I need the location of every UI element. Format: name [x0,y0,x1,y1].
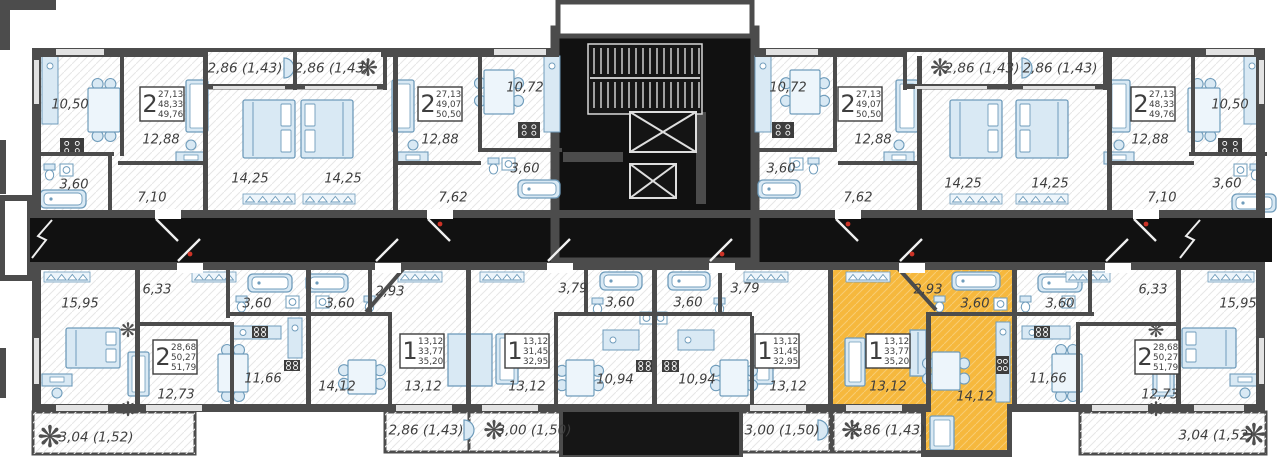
room-area-label: 12,88 [1131,133,1168,148]
toilet-icon [592,298,603,314]
room-area-label: 3,60 [1213,177,1242,192]
room-area-label: 11,66 [1029,372,1066,387]
wall-segment [0,348,6,398]
wall-segment [118,161,206,165]
bed-icon [1182,328,1236,368]
apartment-rooms-count: 2 [1137,343,1152,371]
balcony-area-label: 2,86 (1,43) [945,61,1020,77]
window [213,86,285,89]
stove-icon [252,326,268,338]
wall-segment [395,161,481,165]
bathtub-icon [40,190,86,208]
room-area-label: 14,25 [944,177,981,192]
wall-segment [930,312,1012,316]
balcony-area-label: 3,00 (1,50) [497,423,572,439]
wardrobe-hangers-icon [243,194,295,204]
wall-segment [652,262,657,412]
wall-segment [554,316,558,412]
apartment-rooms-count: 2 [142,90,157,118]
apartment-rooms-count: 1 [507,337,522,365]
room-area-label: 14,25 [324,172,361,187]
room-area-label: 12,73 [1141,388,1178,403]
entry-dot [1144,222,1149,227]
balcony-area-label: 3,04 (1,52) [59,430,134,446]
window [1194,405,1244,411]
wall-segment [1256,262,1265,412]
floor-plan-svg: ❋❋❋❋❋❋❋❋❋❋ 10,5012,8814,253,607,1014,251… [0,0,1280,457]
window [750,405,806,411]
apartment-rooms-count: 2 [1133,90,1148,118]
room-area-label: 3,60 [961,297,990,312]
wall-segment [32,152,114,156]
room-area-label: 7,62 [844,191,873,206]
balcony-area-label: 3,04 (1,52) [1179,428,1254,444]
wall-segment [718,266,722,316]
apartment-area-value: 13,12 [773,337,798,347]
apartment-area-value: 51,79 [171,363,196,373]
kitchen-counter-icon [603,330,639,350]
apartment-area-value: 27,13 [1149,90,1174,100]
washer-icon [286,296,299,308]
wall-segment [230,322,234,412]
wall-segment [0,140,6,194]
apartment-area-value: 33,77 [884,347,909,357]
apartment-rooms-count: 1 [757,337,772,365]
wall-segment [828,262,833,412]
bathtub-icon [306,274,348,292]
wall-segment [554,312,656,316]
apartment-area-value: 28,68 [1153,343,1178,353]
wall-segment [139,322,233,326]
apartment-area-value: 27,13 [436,90,461,100]
apartment-area-value: 50,50 [856,110,882,120]
apartment-area-value: 27,13 [158,90,183,100]
apartment-rooms-count: 2 [420,90,435,118]
apartment-area-value: 33,77 [418,347,443,357]
apartment-area-value: 50,27 [171,353,196,363]
apartment-area-value: 49,07 [436,100,461,110]
door-opening [1133,209,1159,219]
wall-segment [1191,56,1195,156]
wardrobe-hangers-icon [950,194,1002,204]
room-area-label: 7,62 [439,191,468,206]
window [56,405,108,411]
wall-segment [108,152,112,212]
apartment-area-value: 48,33 [158,100,183,110]
wall-segment [32,210,1265,218]
entry-dot [910,252,915,257]
kitchen-counter-icon [678,330,714,350]
stove-icon [636,360,653,372]
apartment-badge: 228,6850,2751,79 [153,340,197,374]
stove-icon [518,122,540,138]
wall-segment [1014,312,1094,316]
room-area-label: 7,10 [138,191,167,206]
apartment-area-value: 50,27 [1153,353,1178,363]
window [34,60,39,104]
wall-segment [650,312,752,316]
apartment-area-value: 50,50 [436,110,462,120]
apartment-badge: 227,1348,3349,76 [1131,87,1175,121]
room-area-label: 13,12 [404,380,441,395]
wall-segment [306,262,311,412]
window [305,86,377,89]
wall-segment [696,112,706,204]
wall-segment [1012,262,1017,412]
apartment-badge: 227,1349,0750,50 [418,87,462,121]
room-area-label: 7,10 [1148,191,1177,206]
toilet-icon [44,164,55,180]
wall-segment [226,266,230,318]
room-area-label: 3,60 [674,296,703,311]
wall-segment [563,152,623,162]
wall-segment [1107,56,1112,212]
balcony-area-label: 3,00 (1,50) [745,423,820,439]
door-opening [375,263,401,273]
bathtub-icon [758,180,800,198]
room-area-label: 14,12 [956,390,993,405]
apartment-badge: 113,1231,4532,95 [505,334,549,368]
apartment-area-value: 31,45 [523,347,548,357]
stove-icon [996,356,1009,374]
wall-segment [838,161,922,165]
wardrobe-hangers-icon [303,194,355,204]
wall-segment [0,0,10,50]
wall-segment [1103,48,1107,90]
bathtub-icon [668,272,710,290]
room-area-label: 10,72 [769,81,806,96]
door-opening [1105,263,1131,273]
apartment-area-value: 49,07 [856,100,881,110]
window [1023,86,1095,89]
door-opening [899,263,925,273]
wall-segment [905,48,1107,52]
room-area-label: 12,88 [421,133,458,148]
apartment-area-value: 49,76 [158,110,184,120]
washer-icon [60,164,73,176]
window [1259,338,1264,384]
apartment-area-value: 35,20 [418,357,444,367]
room-area-label: 3,60 [767,162,796,177]
wall-segment [926,312,931,412]
apartment-badge: 113,1231,4532,95 [755,334,799,368]
wardrobe-hangers-icon [398,272,442,282]
apartment-area-value: 32,95 [773,357,798,367]
entry-dot [720,252,725,257]
elevator-icon [630,112,696,152]
apartment-area-value: 35,20 [884,357,910,367]
room-area-label: 12,88 [142,133,179,148]
balcony-area-label: 2,86 (1,43) [389,423,464,439]
wall-segment [1110,161,1194,165]
wardrobe-hangers-icon [44,272,90,282]
bathtub-icon [518,180,560,198]
room-area-label: 13,12 [508,380,545,395]
wall-segment [388,312,392,412]
bathtub-icon [248,274,292,292]
wall-segment [753,148,837,152]
room-area-label: 14,12 [318,380,355,395]
bed-icon [66,328,120,368]
apartment-area-value: 48,33 [1149,100,1174,110]
wardrobe-hangers-icon [1208,272,1254,282]
room-area-label: 3,60 [326,297,355,312]
door-opening [835,209,861,219]
apartment-badge: 228,6850,2751,79 [1135,340,1179,374]
room-area-label: 10,50 [1211,98,1248,113]
entry-dot [846,222,851,227]
room-area-label: 12,88 [854,133,891,148]
apartment-area-value: 13,12 [418,337,443,347]
wall-segment [32,262,41,412]
balcony-area-label: 2,86 (1,43) [1023,61,1098,77]
wall-segment [32,262,1265,270]
wall-segment [1189,152,1267,156]
room-area-label: 14,25 [231,172,268,187]
wardrobe-hangers-icon [846,272,890,282]
apartment-area-value: 51,79 [1153,363,1178,373]
wardrobe-hangers-icon [1016,194,1068,204]
dining-table-icon [88,79,120,142]
room-area-label: 3,79 [559,282,588,297]
washer-icon [1234,164,1247,176]
room-area-label: 10,94 [678,373,715,388]
door-opening [709,263,735,273]
room-area-label: 10,94 [596,373,633,388]
wall-segment [921,450,1012,457]
window [56,49,104,55]
apartment-area-value: 32,95 [523,357,548,367]
apartment-rooms-count: 1 [868,337,883,365]
wall-segment [466,262,471,412]
toilet-icon [808,158,819,174]
apartment-badge: 113,1233,7735,20 [400,334,444,368]
window [146,405,202,411]
room-area-label: 3,60 [511,162,540,177]
balcony-area-label: 2,86 (1,43) [851,423,926,439]
elevator-icon [630,164,676,198]
wall-segment [1088,266,1092,316]
door-opening [155,209,181,219]
bed-icon [301,100,353,158]
door-opening [427,209,453,219]
floor-plan-canvas: ❋❋❋❋❋❋❋❋❋❋ 10,5012,8814,253,607,1014,251… [0,0,1280,457]
entrance-canopy [558,2,752,36]
apartment-rooms-count: 1 [402,337,417,365]
room-area-label: 11,66 [244,372,281,387]
wall-segment [478,56,482,150]
wall-segment [203,56,208,212]
wall-segment [383,48,387,90]
apartment-area-value: 27,13 [856,90,881,100]
apartment-area-value: 31,45 [773,347,798,357]
room-area-label: 13,12 [869,380,906,395]
room-area-label: 6,33 [143,283,172,298]
wardrobe-icon [910,330,926,376]
wall-segment [903,48,907,90]
stove-icon [284,360,300,371]
apartment-rooms-count: 2 [840,90,855,118]
sofa-icon [845,338,865,386]
wall-segment [1007,404,1012,457]
apartment-badge: 227,1348,3349,76 [140,87,184,121]
window [846,405,902,411]
apartment-area-value: 13,12 [884,337,909,347]
door-opening [547,263,573,273]
bed-icon [1016,100,1068,158]
flower-plant-icon: ❋ [1148,318,1165,342]
balcony-area-label: 2,86 (1,43) [295,61,370,77]
toilet-icon [488,158,499,174]
room-area-label: 10,72 [506,81,543,96]
bathtub-icon [600,272,642,290]
room-area-label: 3,79 [731,282,760,297]
stove-icon [772,122,794,138]
window [1092,405,1148,411]
window [1206,49,1254,55]
entry-dot [438,222,443,227]
room-area-label: 10,50 [51,98,88,113]
bathtub-icon [952,272,1000,290]
bed-icon [950,100,1002,158]
washer-icon [994,298,1007,310]
kitchen-counter-icon [544,56,560,132]
room-area-label: 13,12 [769,380,806,395]
window [915,86,987,89]
wall-segment [917,56,922,212]
room-area-label: 14,25 [1031,177,1068,192]
window [1259,60,1264,104]
room-area-label: 6,33 [1139,283,1168,298]
stove-icon [1034,326,1050,338]
entrance-block [561,410,741,457]
wall-segment [833,56,837,150]
room-area-label: 3,60 [1046,297,1075,312]
bathtub-icon [1232,194,1276,212]
room-area-label: 15,95 [61,297,98,312]
room-area-label: 3,60 [60,178,89,193]
apartment-area-value: 49,76 [1149,110,1175,120]
wall-segment [228,312,310,316]
room-area-label: 3,60 [243,297,272,312]
wall-segment [306,312,390,316]
wardrobe-hangers-icon [744,272,788,282]
stove-icon [662,360,679,372]
kitchen-counter-icon [42,56,58,124]
room-area-label: 15,95 [1219,297,1256,312]
wall-segment [750,316,754,412]
door-opening [177,263,203,273]
flower-plant-icon: ❋ [120,318,137,342]
wall-segment [1076,322,1080,412]
apartment-area-value: 13,12 [523,337,548,347]
apartment-area-value: 28,68 [171,343,196,353]
window [34,338,39,384]
sofa-icon [930,416,954,450]
neighbor-balcony [2,198,30,278]
room-area-label: 2,93 [914,283,943,298]
window [766,49,818,55]
balcony-area-label: 2,86 (1,43) [208,61,283,77]
window [396,405,452,411]
window [482,405,538,411]
wall-segment [120,56,124,156]
apartment-rooms-count: 2 [155,343,170,371]
kitchen-counter-icon [288,318,302,358]
window [494,49,546,55]
wall-segment [478,148,562,152]
wall-segment [1080,322,1178,326]
room-area-label: 3,60 [606,296,635,311]
bed-icon [243,100,295,158]
selected-apartment-badge[interactable]: 113,1233,7735,20 [866,334,910,368]
entry-dot [188,252,193,257]
wall-segment [135,262,140,412]
apartment-badge: 227,1349,0750,50 [838,87,882,121]
room-area-label: 2,93 [376,285,405,300]
room-area-label: 12,73 [157,388,194,403]
toilet-icon [1020,296,1031,312]
wall-segment [393,56,398,212]
wardrobe-hangers-icon [480,272,524,282]
